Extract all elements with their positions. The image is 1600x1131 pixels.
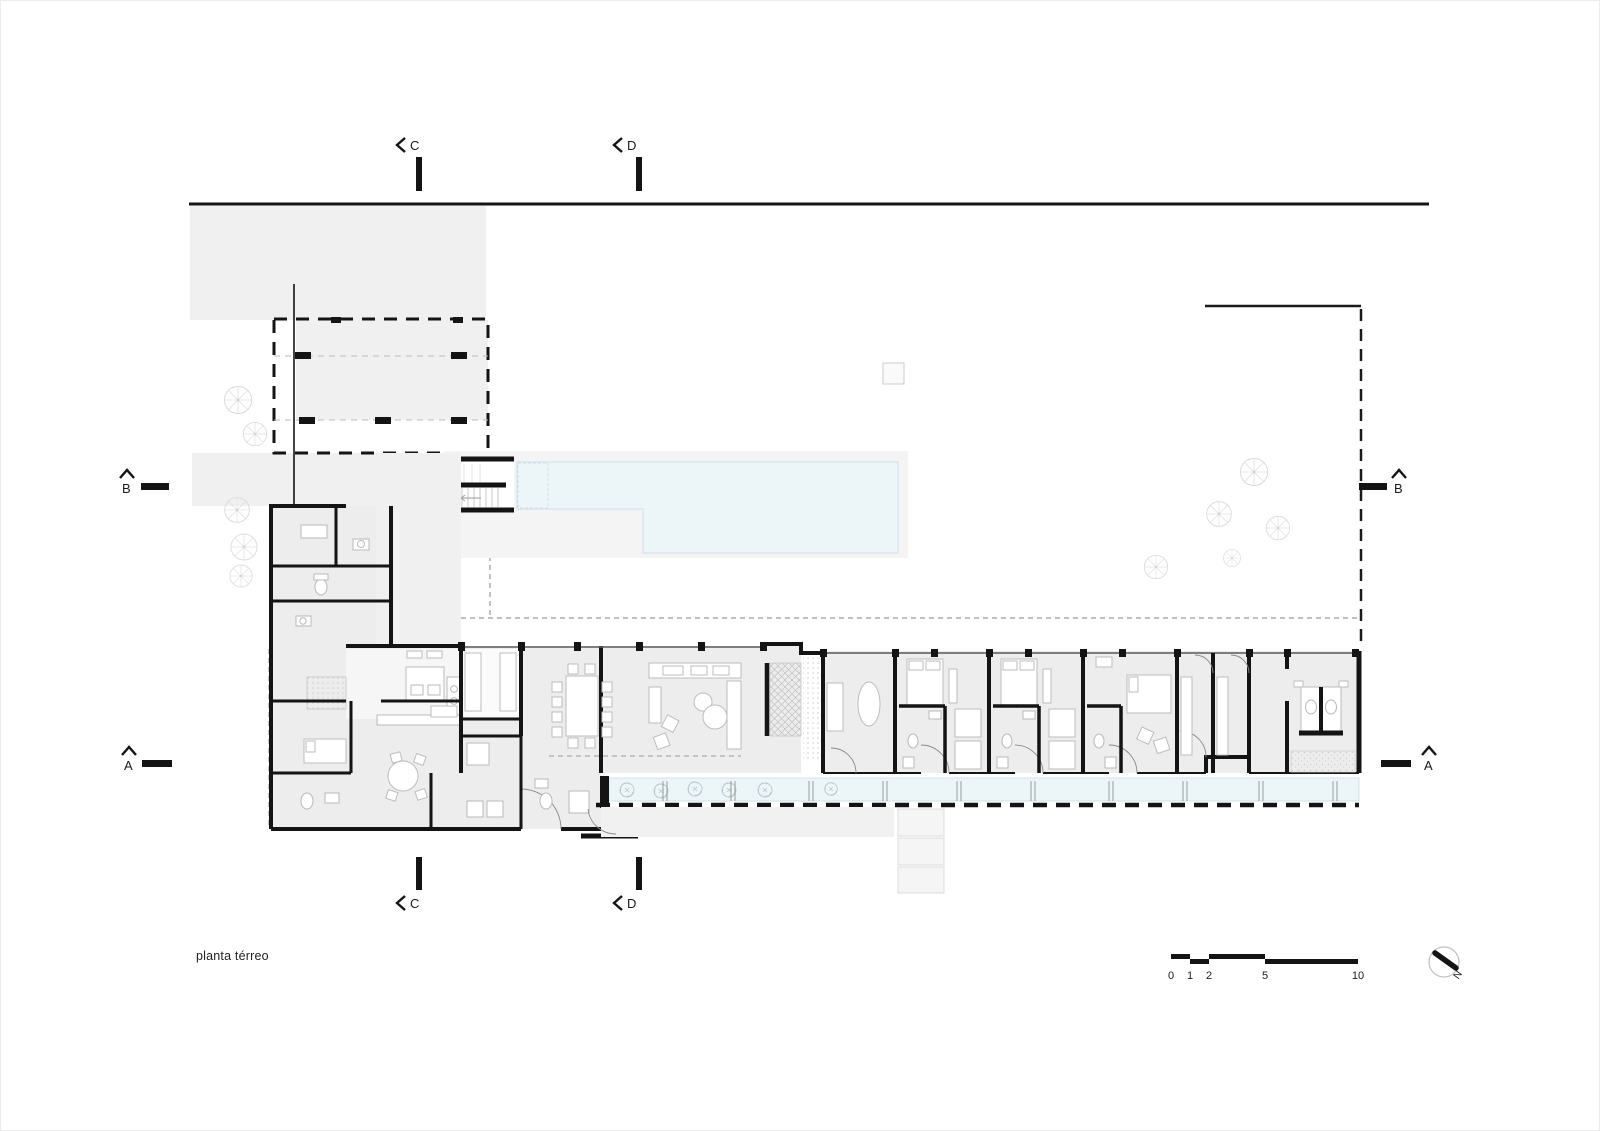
section-marker-b-left: B: [120, 470, 169, 496]
section-label: D: [627, 896, 636, 911]
scale-tick-1: 1: [1187, 970, 1193, 982]
section-label: C: [410, 896, 419, 911]
section-marker-c-bottom: C: [397, 857, 419, 911]
floor-plan-sheet: C D C D B B: [0, 0, 1600, 1131]
trees-right: [1144, 458, 1289, 578]
entry-path: [192, 453, 376, 506]
section-label: B: [1394, 481, 1403, 496]
carport-floor: [296, 320, 488, 420]
section-marker-d-bottom: D: [614, 857, 639, 911]
section-label: B: [122, 481, 131, 496]
section-marker-a-right: A: [1381, 747, 1436, 773]
scale-tick-2: 2: [1206, 970, 1212, 982]
louver-screen: [803, 656, 819, 761]
fire-pit: [883, 363, 904, 384]
scale-tick-5: 5: [1262, 970, 1268, 982]
section-marker-a-left: A: [122, 747, 172, 773]
driveway: [190, 206, 486, 320]
scale-tick-10: 10: [1352, 970, 1364, 982]
water-channel: [596, 776, 1359, 808]
drawing-title: planta térreo: [196, 949, 269, 963]
section-label: A: [1424, 758, 1433, 773]
scale-bar: 0 1 2 5 10: [1168, 954, 1364, 982]
section-label: A: [124, 758, 133, 773]
section-marker-c-top: C: [397, 138, 419, 191]
north-arrow: N: [1429, 947, 1463, 980]
section-marker-b-right: B: [1359, 470, 1406, 496]
scale-tick-0: 0: [1168, 970, 1174, 982]
section-label: D: [627, 138, 636, 153]
stair: [767, 663, 801, 736]
section-marker-d-top: D: [614, 138, 639, 191]
patio-skylight: [307, 677, 346, 709]
section-label: C: [410, 138, 419, 153]
